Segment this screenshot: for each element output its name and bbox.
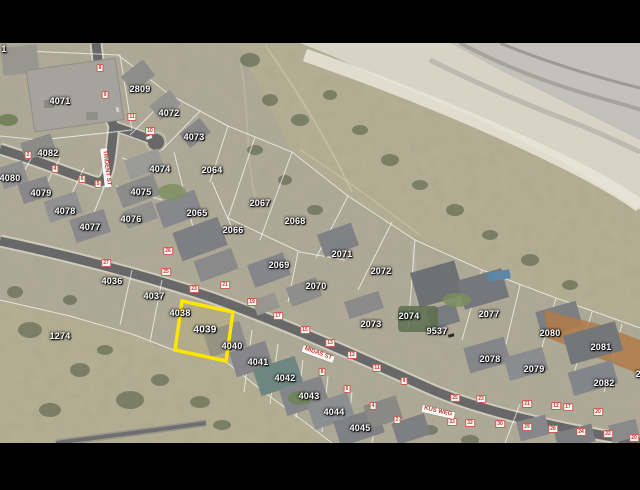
screenshot-root: 1407128094072407320644074407540764082408… [0,0,640,490]
aerial-imagery [0,0,640,490]
letterbox-bar-bottom [0,443,640,490]
letterbox-bar-top [0,0,640,43]
highlighted-parcel-outline[interactable] [175,301,233,361]
map-viewport[interactable]: 1407128094072407320644074407540764082408… [0,0,640,490]
